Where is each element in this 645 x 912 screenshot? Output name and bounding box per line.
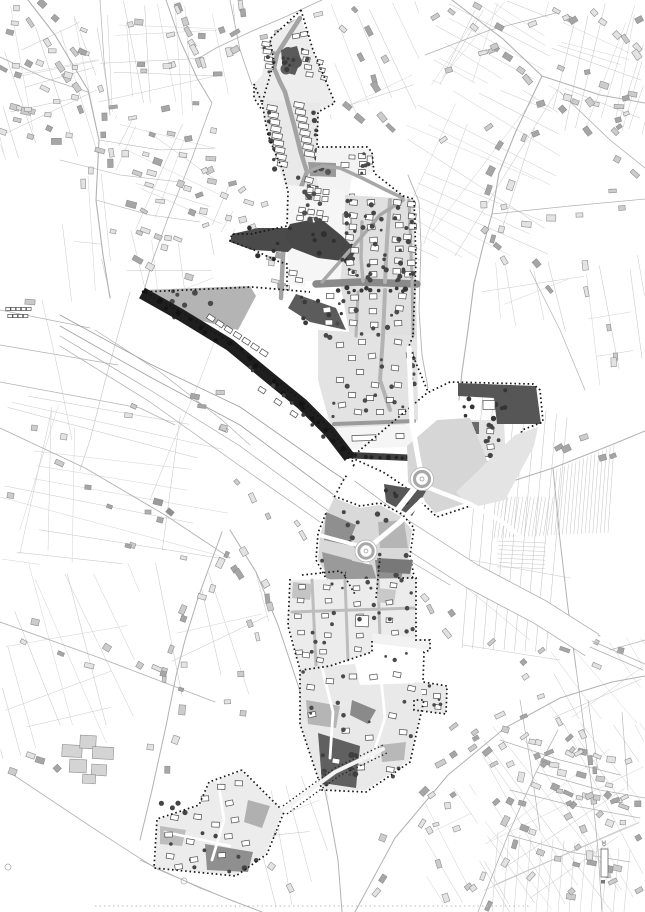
svg-text:30: 30 (600, 840, 606, 846)
